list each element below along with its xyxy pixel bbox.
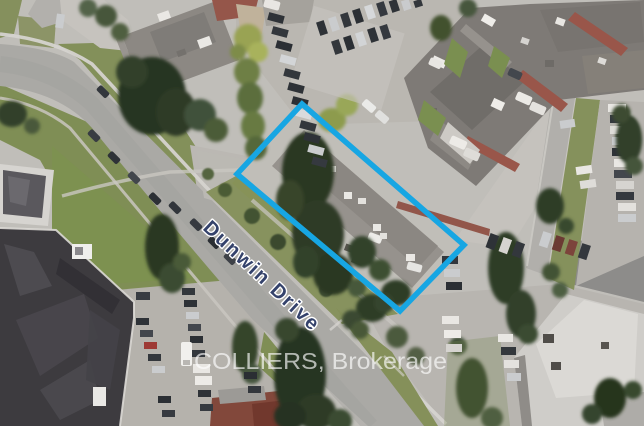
svg-text:COLLIERS, Brokerage: COLLIERS, Brokerage: [194, 348, 447, 374]
